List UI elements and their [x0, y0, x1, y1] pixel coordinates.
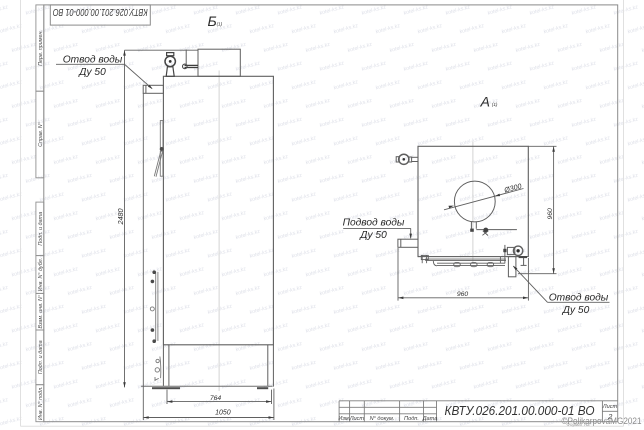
- svg-text:Подп. и дата: Подп. и дата: [38, 212, 44, 246]
- svg-text:960: 960: [457, 291, 469, 298]
- svg-text:Ду 50: Ду 50: [359, 230, 387, 241]
- svg-text:Инв. N° дубл.: Инв. N° дубл.: [38, 258, 44, 291]
- svg-text:Дата: Дата: [422, 416, 438, 422]
- svg-text:960: 960: [547, 208, 554, 220]
- svg-text:2480: 2480: [116, 209, 125, 226]
- svg-text:Ду 50: Ду 50: [562, 305, 590, 316]
- svg-text:N° докум.: N° докум.: [370, 416, 395, 422]
- svg-text:Взам. инв. N°: Взам. инв. N°: [38, 294, 44, 328]
- svg-text:©PolikarpovaMG2021: ©PolikarpovaMG2021: [562, 416, 642, 426]
- svg-text:Подп.: Подп.: [404, 416, 419, 422]
- svg-text:Отвод воды: Отвод воды: [549, 292, 609, 303]
- svg-text:КВТУ.026.201.00.000-01 ВО: КВТУ.026.201.00.000-01 ВО: [53, 6, 148, 17]
- svg-text:Подвод воды: Подвод воды: [343, 218, 405, 229]
- svg-text:(1): (1): [217, 22, 223, 27]
- svg-text:Б: Б: [208, 14, 217, 30]
- svg-text:764: 764: [210, 395, 222, 402]
- svg-text:Лист: Лист: [349, 416, 365, 422]
- svg-text:Подп. и дата: Подп. и дата: [38, 340, 44, 374]
- svg-text:1050: 1050: [215, 410, 231, 417]
- svg-text:Ду 50: Ду 50: [78, 67, 106, 78]
- svg-text:Перв. примен.: Перв. примен.: [38, 30, 44, 66]
- svg-text:Инв. N° подл.: Инв. N° подл.: [38, 386, 44, 420]
- svg-text:(1): (1): [492, 102, 498, 107]
- svg-text:А: А: [480, 95, 490, 111]
- svg-text:Отвод воды: Отвод воды: [63, 54, 123, 65]
- svg-text:Справ. N°: Справ. N°: [38, 121, 44, 147]
- svg-text:Изм.: Изм.: [338, 416, 350, 422]
- svg-text:Лист: Лист: [602, 404, 618, 410]
